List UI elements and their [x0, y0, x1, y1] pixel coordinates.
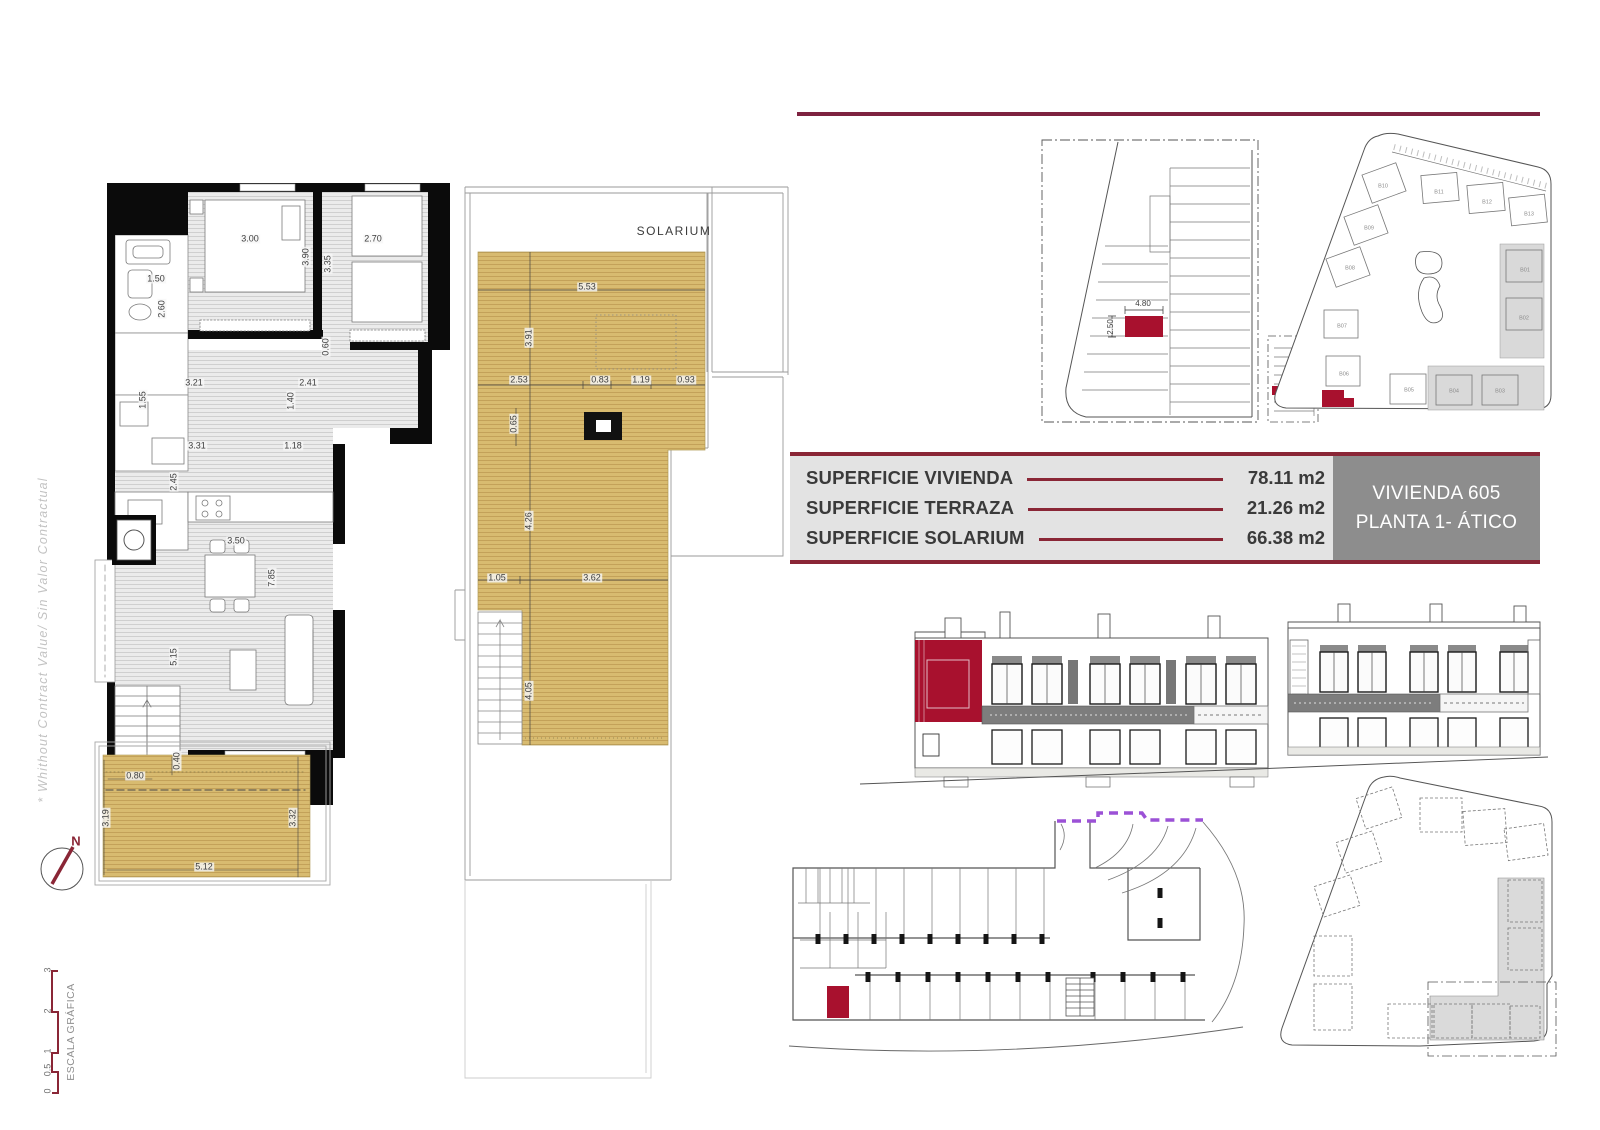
solarium-dimension-label: 0.83: [590, 376, 610, 385]
parking-dimension-label: 4.80: [1135, 300, 1151, 308]
entry-steps-a: [944, 777, 1254, 787]
vanity-icon: [152, 438, 184, 464]
wall-entrance: [390, 428, 432, 444]
floorplan-dimension-label: 1.18: [283, 442, 303, 451]
table-row: SUPERFICIE TERRAZA 21.26 m2: [806, 497, 1325, 519]
chair: [210, 599, 225, 612]
floorplan-dimension-label: 2.45: [170, 472, 179, 492]
base-strip-b: [1288, 747, 1540, 755]
building-unit-label: B12: [1482, 200, 1492, 206]
coffee-table: [230, 650, 256, 690]
floorplan-dimension-label: 3.50: [226, 537, 246, 546]
floorplan-dimension-label: 5.15: [170, 647, 179, 667]
floorplan-dimension-label: 3.19: [102, 808, 111, 828]
surface-value: 21.26 m2: [1239, 497, 1325, 519]
floorplan-dimension-label: 0.40: [173, 751, 182, 771]
elevation-b-parapet: [1288, 622, 1540, 628]
parking-stalls-right: [1170, 168, 1250, 415]
burner: [216, 511, 222, 517]
floorplan-dimension-label: 3.32: [289, 808, 298, 828]
burner: [202, 500, 208, 506]
floorplan-dimension-label: 2.41: [298, 379, 318, 388]
unit-title-box: VIVIENDA 605 PLANTA 1- ÁTICO: [1333, 456, 1540, 560]
building-unit-label: B04: [1449, 389, 1459, 395]
garage-stalls-bottom: [870, 975, 1185, 1020]
surface-value: 78.11 m2: [1239, 467, 1325, 489]
floorplan-dimension-label: 5.12: [194, 863, 214, 872]
building-unit-label: B13: [1524, 212, 1534, 218]
building-unit-label: B06: [1339, 372, 1349, 378]
solarium-dimension-label: 1.05: [487, 574, 507, 583]
stairs-solarium: [478, 612, 522, 744]
chair: [234, 599, 249, 612]
solarium-dimension-label: 4.26: [525, 511, 534, 531]
roof-outline-right-upper: [707, 187, 788, 375]
garage-plan: [789, 813, 1244, 1051]
building-unit-label: B05: [1404, 388, 1414, 394]
solarium-dimension-label: 5.53: [577, 283, 597, 292]
wardrobe-2: [350, 330, 425, 341]
railing-b: [1440, 694, 1528, 712]
floorplan-dimension-label: 0.80: [125, 772, 145, 781]
shaded-block-right: [1500, 244, 1544, 358]
building-unit-label: B03: [1495, 389, 1505, 395]
wall-bedroom-divider: [313, 190, 322, 330]
wall-left-upper: [107, 235, 115, 471]
surface-label: SUPERFICIE SOLARIUM: [806, 527, 1025, 549]
wall-block-topleft: [107, 183, 188, 235]
roof-outline-jog: [455, 590, 465, 640]
solarium-dimension-label: 4.05: [525, 681, 534, 701]
solarium-dimension-label: 2.53: [509, 376, 529, 385]
closet-room: [115, 333, 188, 395]
nightstand: [190, 200, 203, 214]
building-elevations: [860, 604, 1548, 787]
leader-line: [1027, 478, 1223, 481]
building-unit-label: B07: [1337, 324, 1347, 330]
parking-core: [1150, 196, 1170, 252]
wall-living-right-upper: [333, 444, 345, 544]
sink-icon: [129, 304, 151, 320]
shaded-block-bottom: [1428, 366, 1544, 410]
scale-tick-label: 3: [44, 967, 53, 972]
floorplan-dimension-label: 3.90: [302, 247, 311, 267]
disclaimer-text: * Whithout Contract Value/ Sin Valor Con…: [37, 477, 50, 803]
purple-boundary-dashed: [1057, 813, 1203, 821]
stair-bulkhead-inner: [596, 420, 611, 432]
scale-tick-label: 0: [44, 1088, 53, 1093]
floorplan-dimension-label: 3.35: [324, 254, 333, 274]
floorplan-dimension-label: 3.00: [240, 235, 260, 244]
floorplan-dimension-label: 2.70: [363, 235, 383, 244]
parking-boundary-dashdot: [1042, 140, 1258, 422]
table-row: SUPERFICIE SOLARIUM 66.38 m2: [806, 527, 1325, 549]
parking-dimension-label: 2.50: [1107, 319, 1115, 335]
garage-stairs: [1066, 978, 1094, 1016]
solarium-dimension-label: 3.62: [582, 574, 602, 583]
building-unit-label: B01: [1520, 268, 1530, 274]
site-plan-upper: [1275, 133, 1551, 410]
surface-value: 66.38 m2: [1239, 527, 1325, 549]
burner: [202, 511, 208, 517]
stove-icon: [196, 496, 230, 520]
window-bedroom-1: [240, 184, 295, 191]
building-unit-label: B02: [1519, 316, 1529, 322]
wall-living-right-lower: [333, 610, 345, 758]
solarium-roof-plan: [455, 187, 788, 1078]
building-unit-label: B11: [1434, 190, 1443, 196]
floorplan-dimension-label: 0.60: [322, 337, 331, 357]
wall-bedroom2-bottom: [350, 342, 428, 350]
wardrobe-1: [200, 320, 310, 331]
leader-line: [1039, 538, 1223, 541]
nightstand: [190, 278, 203, 292]
north-label: N: [71, 835, 80, 848]
scale-tick-label: 0.5: [44, 1064, 53, 1077]
ground-curve: [789, 1027, 1243, 1051]
garage-storage-rooms: [798, 868, 886, 968]
solarium-title: SOLARIUM: [637, 225, 712, 237]
surface-table: SUPERFICIE VIVIENDA 78.11 m2 SUPERFICIE …: [790, 456, 1333, 560]
floorplan-dimension-label: 2.60: [158, 299, 167, 319]
building-unit-label: B09: [1364, 226, 1374, 232]
floorplan-dimension-label: 1.55: [139, 390, 148, 410]
floorplan-dimension-label: 1.40: [287, 391, 296, 411]
wall-stairs-left: [107, 682, 115, 758]
wall-right-upper: [428, 183, 450, 350]
parking-lot-outline: [1066, 142, 1252, 417]
window-bedroom-2: [365, 184, 420, 191]
site-plan-lower: [1281, 776, 1556, 1056]
solarium-dimension-label: 1.19: [631, 376, 651, 385]
door-a-1: [1068, 660, 1078, 704]
sofa: [285, 615, 313, 705]
garage-outer-curve: [1203, 822, 1244, 1022]
leader-line: [1028, 508, 1223, 511]
chair: [210, 540, 225, 553]
unit-floor: PLANTA 1- ÁTICO: [1356, 512, 1517, 534]
plan-sheet-canvas: [0, 0, 1600, 1130]
stairs-apartment: [115, 686, 180, 760]
wall-terrace-side: [310, 755, 333, 805]
dining-table: [205, 555, 255, 597]
wall-hall-right: [418, 350, 432, 428]
chimneys-a: [945, 612, 1220, 638]
north-needle: [52, 847, 73, 884]
highlighted-parking-space: [1125, 316, 1163, 337]
parking-plan: [1042, 140, 1258, 422]
solarium-dimension-label: 3.91: [525, 328, 534, 348]
washer-body: [117, 520, 151, 560]
apartment-floor-plan: [95, 183, 450, 885]
building-unit-label: B08: [1345, 266, 1355, 272]
corridor-floor: [188, 350, 418, 428]
unit-name: VIVIENDA 605: [1372, 483, 1500, 505]
scale-tick-label: 1: [44, 1048, 53, 1053]
garage-walls: [793, 821, 1205, 1020]
summary-panel: SUPERFICIE VIVIENDA 78.11 m2 SUPERFICIE …: [790, 452, 1540, 564]
chimneys-b: [1338, 604, 1526, 622]
scale-title: ESCALA GRÁFICA: [66, 983, 77, 1080]
kitchen-floor: [188, 428, 333, 471]
bed-twin-1: [352, 196, 422, 256]
bathtub-inner: [133, 246, 163, 258]
floorplan-dimension-label: 1.50: [146, 275, 166, 284]
floorplan-dimension-label: 3.21: [184, 379, 204, 388]
solarium-dimension-label: 0.65: [510, 414, 519, 434]
surface-label: SUPERFICIE VIVIENDA: [806, 467, 1013, 489]
scale-tick-label: 2: [44, 1008, 53, 1013]
graphic-scale-bar: [52, 971, 58, 1093]
balcony-band-a: [982, 706, 1194, 724]
header-rule: [797, 112, 1540, 116]
floorplan-dimension-label: 7.85: [268, 568, 277, 588]
lower-terrace-outline: [465, 880, 651, 1078]
door-a-2: [1166, 660, 1176, 704]
floorplan-dimension-label: 3.31: [187, 442, 207, 451]
highlighted-unit-elevation: [915, 640, 982, 722]
table-row: SUPERFICIE VIVIENDA 78.11 m2: [806, 467, 1325, 489]
solarium-dimension-label: 0.93: [676, 376, 696, 385]
building-unit-label: B10: [1378, 184, 1388, 190]
surface-label: SUPERFICIE TERRAZA: [806, 497, 1014, 519]
north-arrow: [41, 847, 83, 890]
highlighted-garage-space: [827, 986, 849, 1018]
bed-pillow: [282, 206, 300, 240]
bed-twin-2: [352, 262, 422, 322]
burner: [216, 500, 222, 506]
